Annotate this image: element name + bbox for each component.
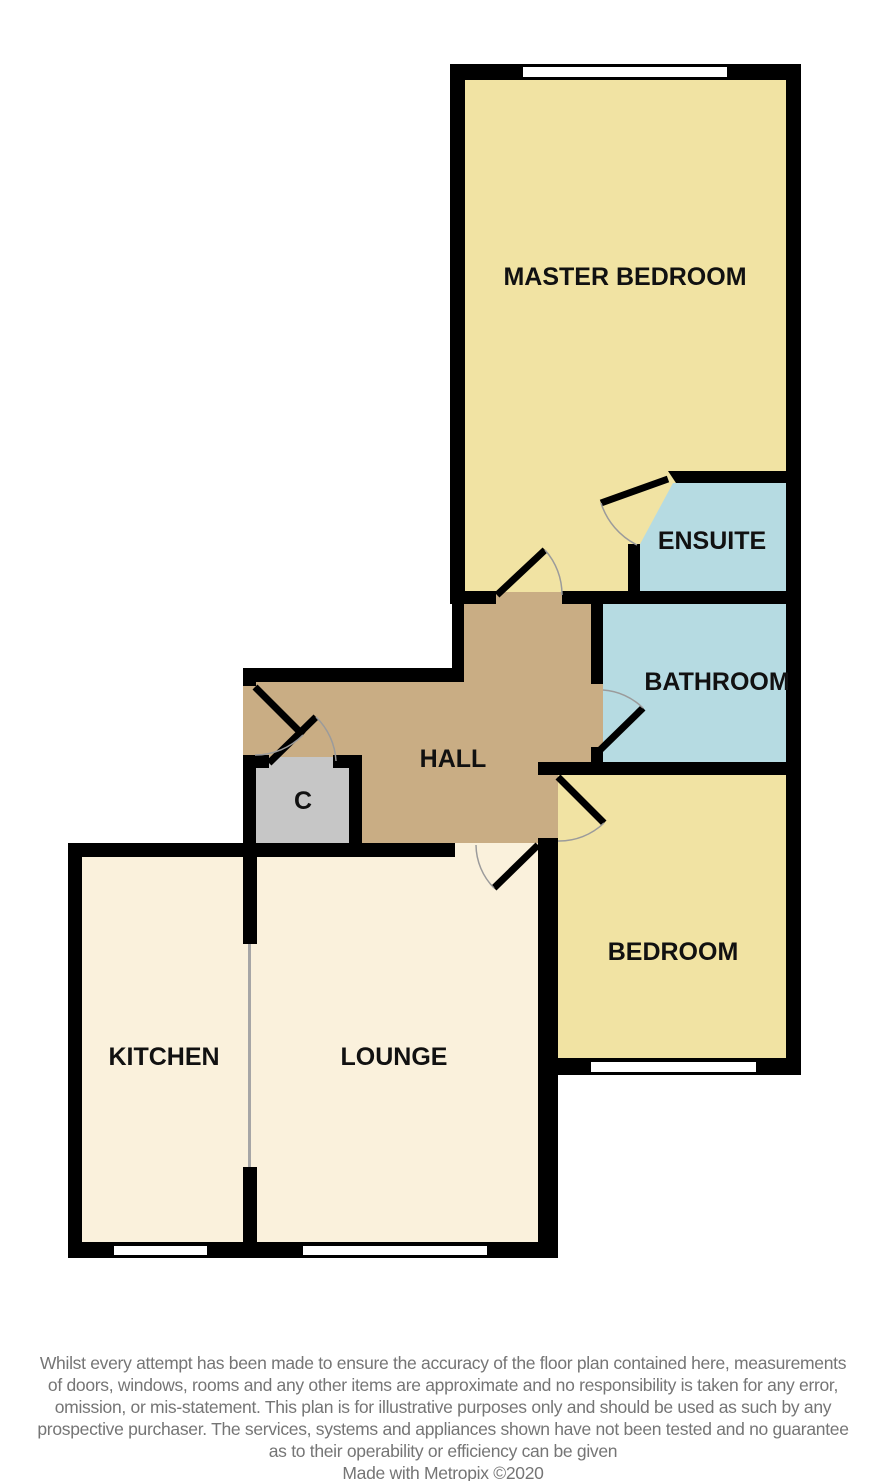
wall-segment [349, 755, 362, 848]
room-label-master-bedroom: MASTER BEDROOM [503, 263, 746, 291]
room-label-ensuite: ENSUITE [658, 527, 766, 555]
wall-segment [591, 591, 603, 684]
wall-segment [450, 64, 465, 604]
disclaimer-line: prospective purchaser. The services, sys… [0, 1418, 886, 1440]
room-label-lounge: LOUNGE [341, 1043, 448, 1071]
kitchen-lounge-divider-line [248, 944, 251, 1167]
wall-segment [668, 471, 801, 483]
room-label-kitchen: KITCHEN [108, 1043, 219, 1071]
disclaimer-line: Whilst every attempt has been made to en… [0, 1352, 886, 1374]
wall-segment [628, 544, 640, 593]
floorplan-canvas: MASTER BEDROOM ENSUITE BATHROOM HALL C B… [0, 0, 886, 1481]
bedroom-window [590, 1061, 757, 1073]
floorplan-page: MASTER BEDROOM ENSUITE BATHROOM HALL C B… [0, 0, 886, 1481]
room-label-bathroom: BATHROOM [644, 668, 789, 696]
disclaimer-line: as to their operability or efficiency ca… [0, 1440, 886, 1462]
disclaimer-line: omission, or mis-statement. This plan is… [0, 1396, 886, 1418]
wall-segment [243, 843, 257, 944]
wall-segment [538, 762, 801, 775]
wall-segment [250, 755, 269, 768]
room-label-closet: C [294, 787, 312, 815]
wall-segment [68, 843, 82, 1256]
lounge-window [302, 1245, 488, 1256]
wall-segment [243, 755, 256, 848]
room-label-bedroom: BEDROOM [608, 938, 739, 966]
kitchen-window [113, 1245, 208, 1256]
wall-segment [786, 64, 801, 1075]
wall-segment [68, 843, 455, 857]
wall-segment [243, 668, 256, 686]
disclaimer: Whilst every attempt has been made to en… [0, 1352, 886, 1481]
wall-segment [538, 838, 558, 1258]
room-label-hall: HALL [420, 745, 487, 773]
wall-segment [243, 1167, 257, 1258]
hall-floor [464, 591, 603, 683]
wall-segment [243, 668, 464, 682]
master-bedroom-window [522, 66, 728, 78]
metropix-credit: Made with Metropix ©2020 [0, 1462, 886, 1481]
disclaimer-line: of doors, windows, rooms and any other i… [0, 1374, 886, 1396]
